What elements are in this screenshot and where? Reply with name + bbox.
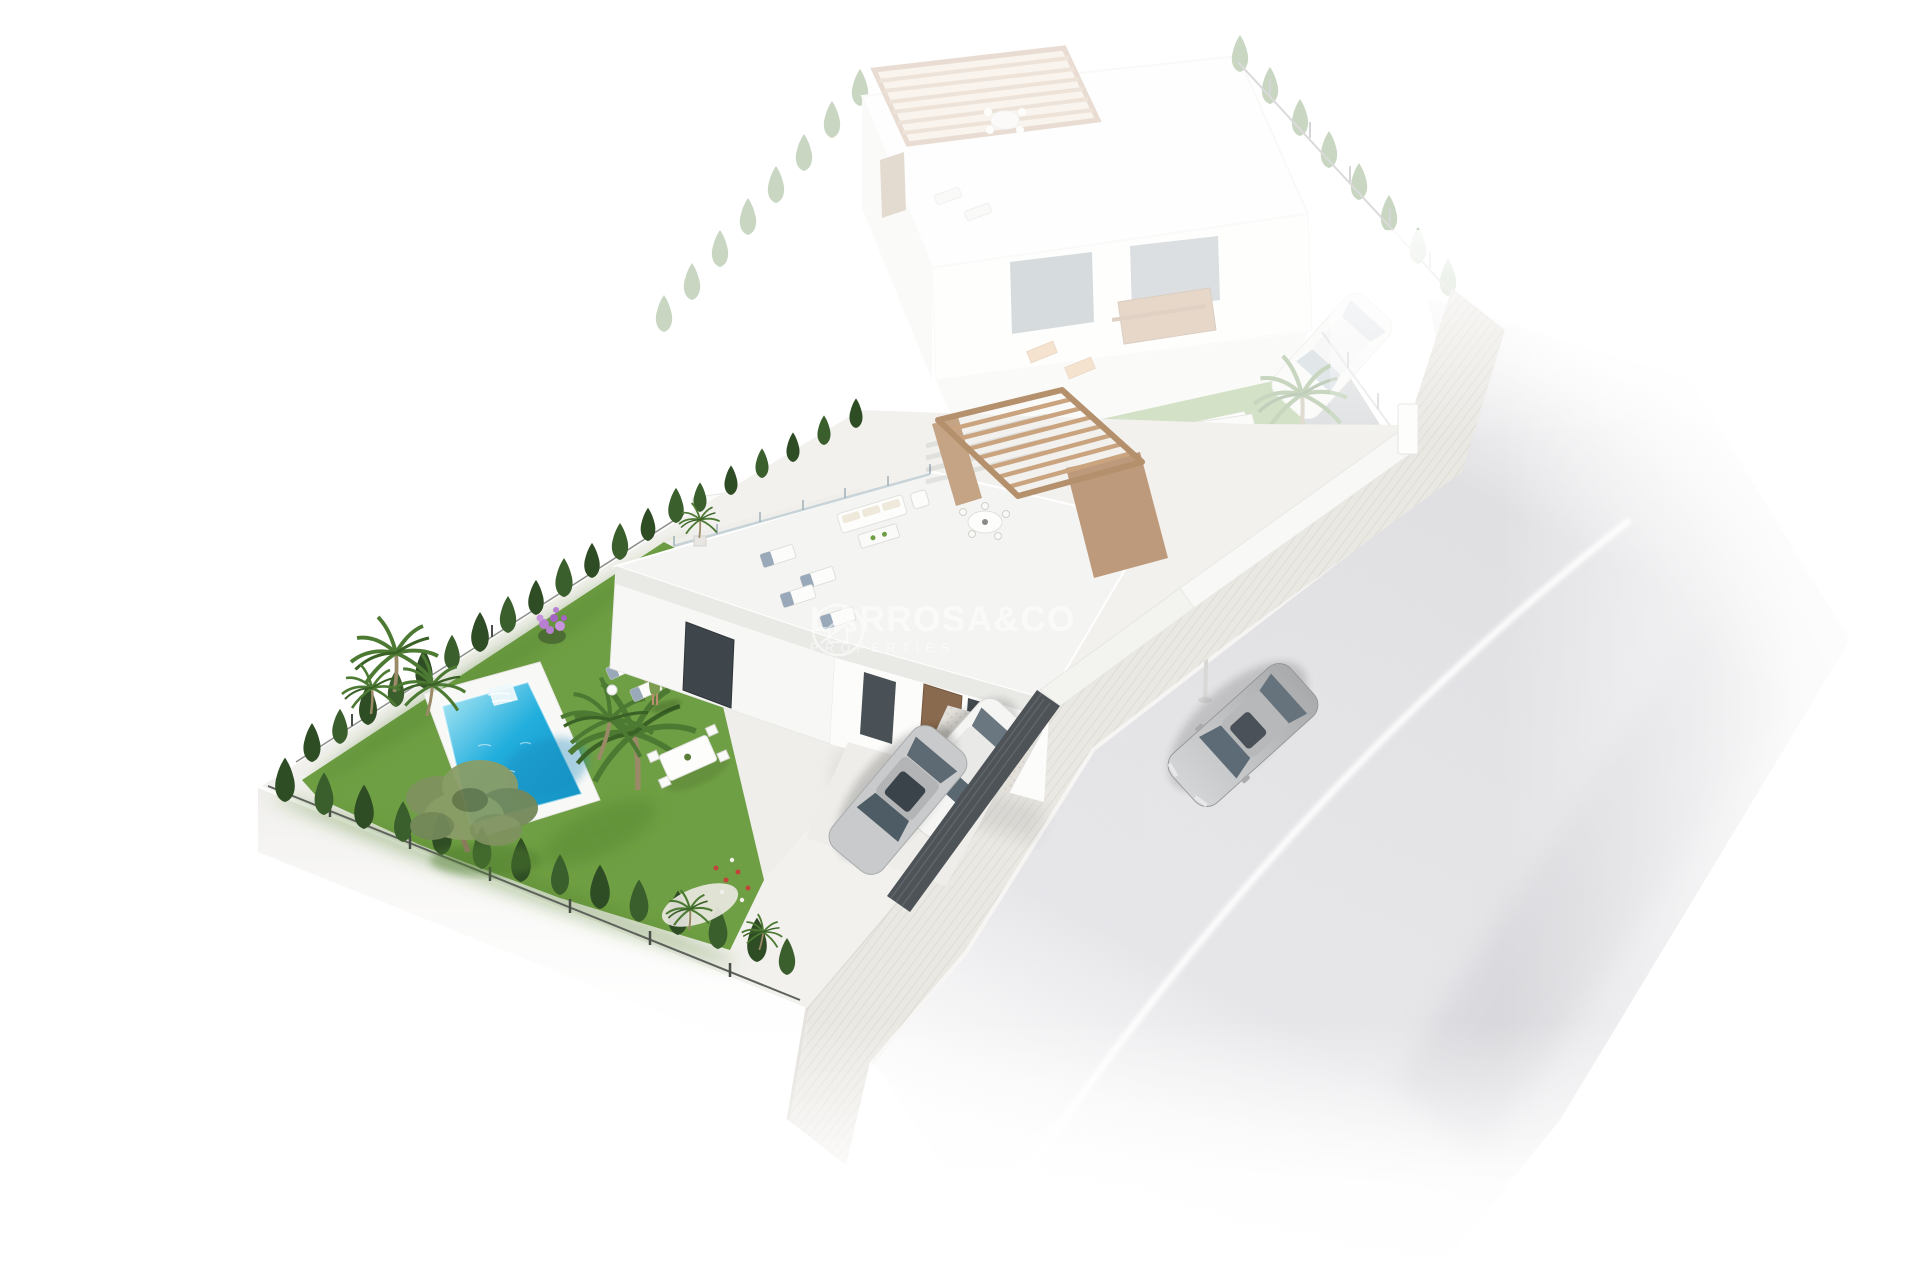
ghost-door <box>880 152 906 218</box>
property-render: LARROSA&CO PROPERTIES <box>0 0 1920 1280</box>
road-top-fade <box>1330 230 1920 440</box>
bottom-fade <box>0 1020 1920 1280</box>
scene-canvas <box>0 0 1920 1280</box>
ghost-hedge-row-left <box>656 69 868 332</box>
ghost-window <box>1010 252 1094 334</box>
villa-window-front <box>860 672 896 744</box>
